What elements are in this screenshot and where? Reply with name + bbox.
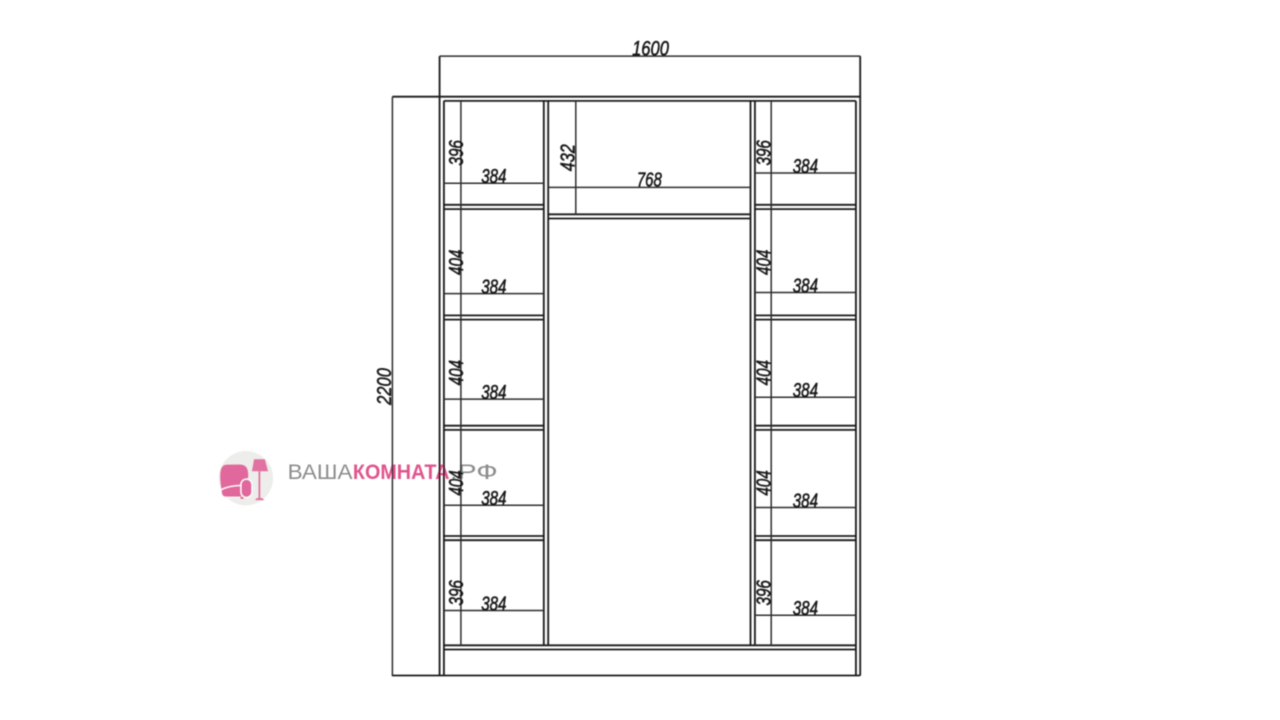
svg-text:КОМНАТА: КОМНАТА — [353, 460, 450, 484]
svg-text:384: 384 — [793, 597, 818, 620]
svg-text:1600: 1600 — [632, 38, 669, 61]
svg-text:404: 404 — [445, 470, 468, 495]
svg-text:384: 384 — [481, 275, 506, 298]
svg-text:404: 404 — [445, 250, 468, 275]
svg-text:396: 396 — [445, 140, 468, 165]
svg-text:432: 432 — [557, 144, 579, 171]
svg-text:396: 396 — [445, 580, 468, 605]
svg-text:384: 384 — [793, 274, 818, 297]
svg-text:404: 404 — [753, 250, 776, 275]
svg-text:384: 384 — [481, 487, 506, 510]
svg-text:396: 396 — [753, 580, 776, 605]
svg-text:404: 404 — [445, 360, 468, 385]
svg-text:384: 384 — [481, 381, 506, 404]
svg-text:768: 768 — [637, 168, 662, 191]
svg-text:384: 384 — [793, 379, 818, 402]
svg-text:404: 404 — [753, 470, 776, 495]
svg-text:384: 384 — [793, 489, 818, 512]
svg-text:2200: 2200 — [372, 367, 395, 405]
svg-text:384: 384 — [481, 592, 506, 615]
svg-text:384: 384 — [793, 155, 818, 178]
svg-text:396: 396 — [753, 140, 776, 165]
svg-text:384: 384 — [481, 165, 506, 188]
svg-text:ВАША: ВАША — [288, 460, 353, 484]
svg-text:404: 404 — [753, 360, 776, 385]
